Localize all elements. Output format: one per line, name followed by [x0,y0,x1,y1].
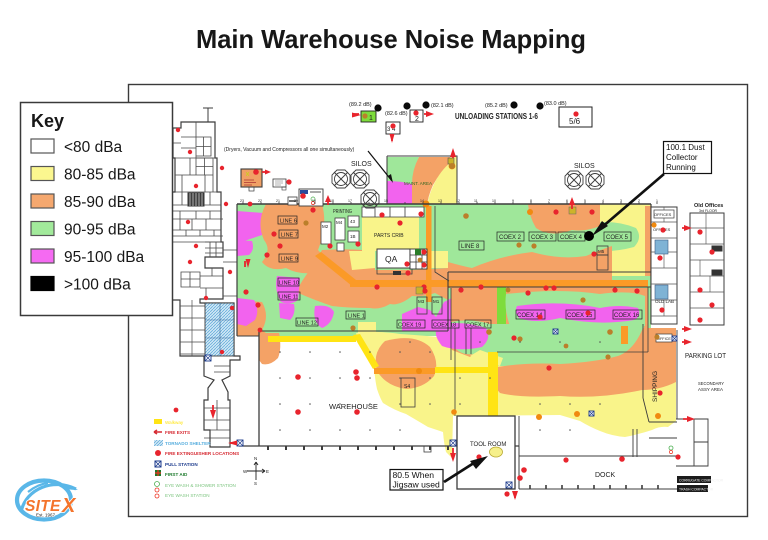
svg-text:TRASH COMPACTOR: TRASH COMPACTOR [679,488,714,492]
svg-text:6: 6 [566,199,568,203]
svg-text:7: 7 [548,199,550,203]
svg-text:COEX 2: COEX 2 [499,235,522,241]
svg-text:FIRST AID: FIRST AID [165,472,188,477]
svg-text:MAINT. AREA: MAINT. AREA [404,181,432,186]
svg-text:1: 1 [656,199,658,203]
svg-text:COEX 17: COEX 17 [466,323,489,329]
svg-text:M2: M2 [322,224,329,229]
svg-text:5: 5 [584,199,586,203]
svg-text:8: 8 [530,199,532,203]
svg-text:13: 13 [438,199,442,203]
svg-text:FIRE EXITS: FIRE EXITS [165,430,190,435]
svg-text:UNLOADING STATIONS 1-6: UNLOADING STATIONS 1-6 [455,111,538,121]
svg-text:9: 9 [512,199,514,203]
svg-text:X: X [61,495,77,517]
svg-text:80-85 dBa: 80-85 dBa [64,167,136,184]
svg-text:11: 11 [474,199,478,203]
svg-text:12: 12 [456,199,460,203]
svg-text:SILOS: SILOS [574,163,595,170]
svg-text:Jigsaw used: Jigsaw used [393,480,441,490]
svg-text:LINE 1: LINE 1 [348,314,365,320]
svg-text:N: N [254,456,257,461]
svg-text:(85.2 dB): (85.2 dB) [485,103,508,109]
svg-text:SHIPPING: SHIPPING [652,371,659,402]
svg-text:22: 22 [258,199,262,203]
svg-text:LINE 7: LINE 7 [281,233,298,239]
svg-text:<80 dBa: <80 dBa [64,139,123,156]
svg-text:PULL STATION: PULL STATION [165,462,198,467]
svg-text:OFFICES: OFFICES [654,212,672,217]
svg-text:Main Warehouse Noise Mapping: Main Warehouse Noise Mapping [196,24,586,54]
svg-text:18: 18 [330,199,334,203]
svg-text:23: 23 [240,199,244,203]
svg-text:LINE 10: LINE 10 [279,281,299,287]
svg-text:DOCK: DOCK [595,472,616,479]
svg-text:(Dryers, Vacuum and Compressor: (Dryers, Vacuum and Compressors all one … [224,147,355,153]
svg-text:1: 1 [369,115,373,122]
svg-text:Running: Running [666,163,696,172]
svg-text:LINE 9: LINE 9 [281,257,298,263]
svg-text:Collector: Collector [666,153,698,162]
svg-text:TOOL ROOM: TOOL ROOM [470,442,506,448]
svg-text:LINE 12: LINE 12 [297,321,317,327]
svg-text:5/6: 5/6 [569,117,581,126]
svg-text:COEX 16: COEX 16 [614,313,640,319]
svg-text:LINE 6: LINE 6 [280,219,297,225]
svg-text:FIRE EXTINGUISHER LOCATIONS: FIRE EXTINGUISHER LOCATIONS [165,451,239,456]
svg-text:21: 21 [276,199,280,203]
svg-text:S4: S4 [404,384,410,390]
svg-text:(83.0 dB): (83.0 dB) [544,101,567,107]
svg-text:S: S [254,481,257,486]
svg-text:M3: M3 [418,299,425,304]
svg-text:(82.1 dB): (82.1 dB) [431,103,454,109]
svg-text:LINE 8: LINE 8 [461,244,480,250]
svg-text:COEX 4: COEX 4 [560,235,583,241]
svg-text:PARKING LOT: PARKING LOT [685,353,727,360]
svg-text:1B: 1B [350,234,356,239]
svg-text:CORRUGATE COMPACTOR: CORRUGATE COMPACTOR [679,479,724,483]
svg-text:90-95 dBa: 90-95 dBa [64,222,136,239]
svg-text:EYE WASH & SHOWER STATION: EYE WASH & SHOWER STATION [165,483,236,488]
svg-text:(89.2 dB): (89.2 dB) [349,102,372,108]
svg-text:Key: Key [31,111,64,131]
svg-text:OLD LAB: OLD LAB [655,299,674,304]
svg-text:>100 dBa: >100 dBa [64,277,131,294]
svg-text:10: 10 [492,199,496,203]
svg-text:(82.6 dB): (82.6 dB) [385,111,408,117]
svg-text:ASSY AREA: ASSY AREA [698,387,724,392]
svg-text:3rd FLOOR: 3rd FLOOR [699,209,718,213]
svg-text:Est. 1967: Est. 1967 [36,513,56,518]
svg-text:EYE WASH STATION: EYE WASH STATION [165,493,210,498]
svg-text:20: 20 [294,199,298,203]
svg-text:100.1 Dust: 100.1 Dust [666,143,705,152]
svg-text:85-90 dBa: 85-90 dBa [64,194,136,211]
svg-text:43: 43 [350,219,356,224]
svg-text:PRINTING: PRINTING [333,209,352,215]
svg-text:17: 17 [348,199,352,203]
svg-text:SILOS: SILOS [351,161,372,168]
svg-text:M4: M4 [336,220,343,225]
svg-text:E: E [266,469,269,474]
svg-text:4: 4 [602,199,604,203]
svg-text:19: 19 [312,199,316,203]
svg-text:M5: M5 [598,249,605,254]
svg-text:PARTS CRIB: PARTS CRIB [374,233,404,239]
svg-text:2: 2 [638,199,640,203]
svg-text:SECONDARY: SECONDARY [698,381,724,386]
svg-text:Walkway: Walkway [165,420,184,425]
svg-text:M1: M1 [433,299,440,304]
svg-text:QA: QA [385,254,398,264]
svg-text:3: 3 [620,199,622,203]
svg-text:TORNADO SHELTER: TORNADO SHELTER [165,441,211,446]
svg-text:WAREHOUSE: WAREHOUSE [329,402,378,411]
svg-text:COEX 5: COEX 5 [606,235,629,241]
svg-text:COEX 3: COEX 3 [531,235,554,241]
svg-text:95-100 dBa: 95-100 dBa [64,249,145,266]
svg-text:80.5 When: 80.5 When [393,470,435,480]
svg-text:15: 15 [384,199,388,203]
svg-text:14: 14 [420,199,424,203]
svg-text:LINE 11: LINE 11 [279,295,298,301]
svg-text:COEX 19: COEX 19 [398,323,421,329]
svg-text:COEX 18: COEX 18 [433,323,456,329]
svg-text:2: 2 [415,116,419,123]
